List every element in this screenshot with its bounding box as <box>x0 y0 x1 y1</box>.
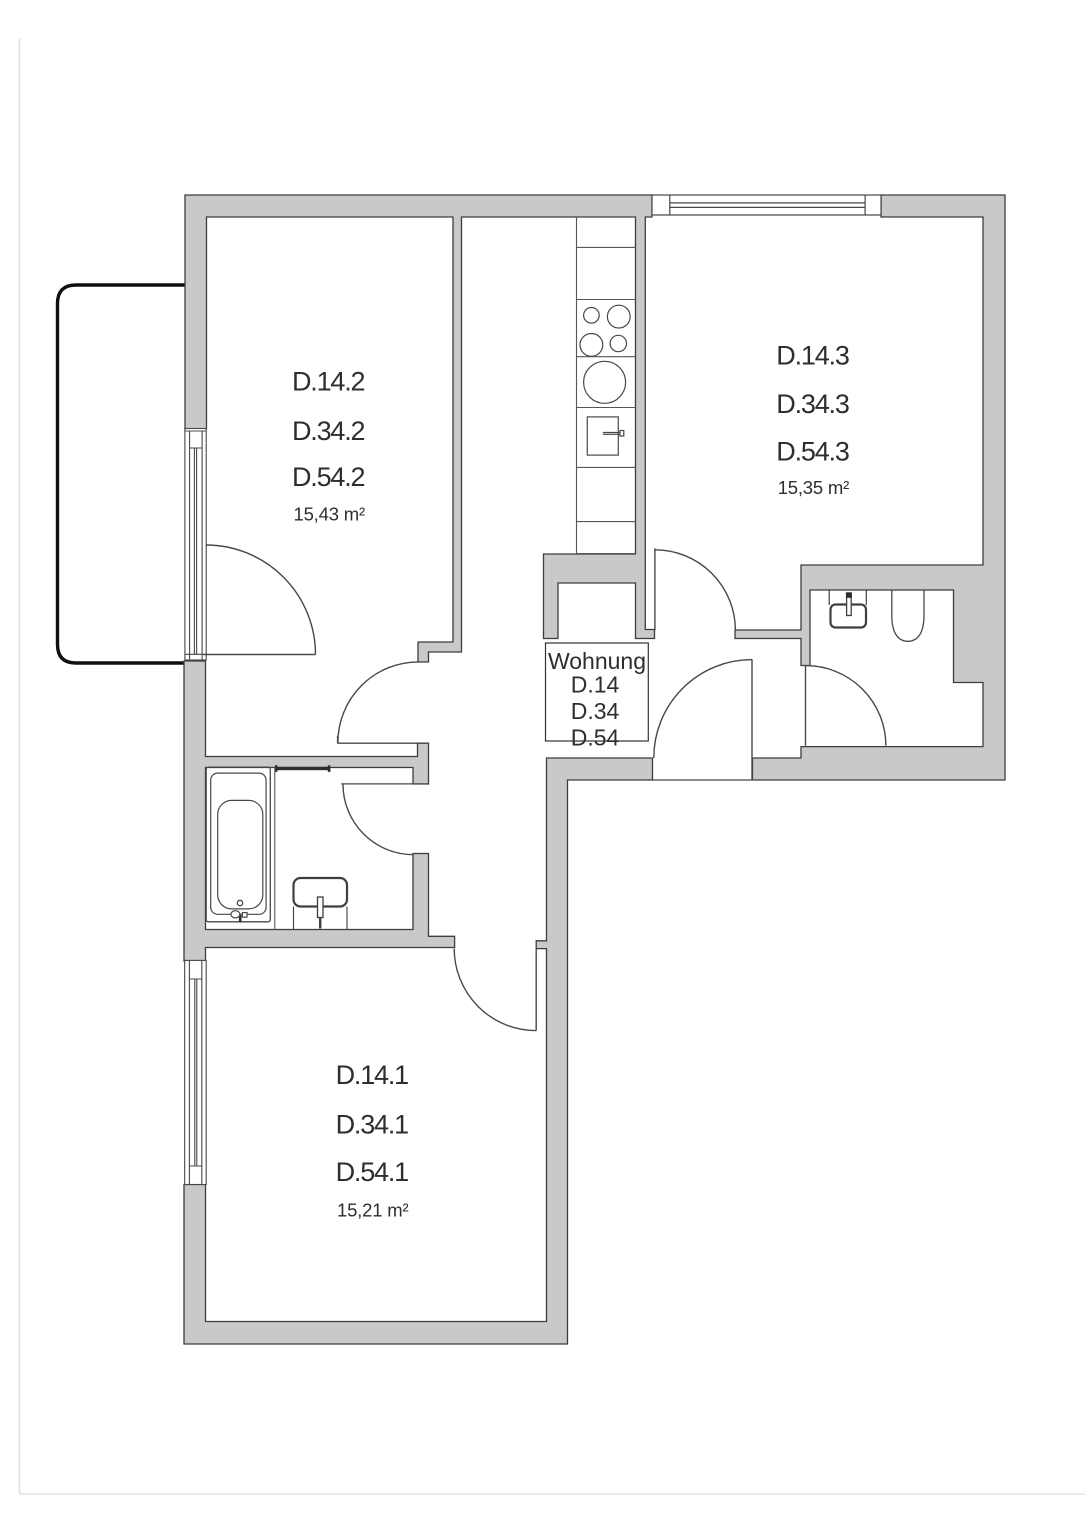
svg-text:D.54.3: D.54.3 <box>776 437 849 467</box>
svg-text:D.34: D.34 <box>571 698 620 724</box>
svg-text:D.54.2: D.54.2 <box>292 462 365 492</box>
svg-text:15,43 m²: 15,43 m² <box>294 503 365 524</box>
svg-text:D.54: D.54 <box>571 725 620 751</box>
svg-text:D.34.3: D.34.3 <box>776 389 849 419</box>
svg-text:D.54.1: D.54.1 <box>336 1157 409 1187</box>
svg-text:D.34.2: D.34.2 <box>292 416 365 446</box>
svg-text:15,21 m²: 15,21 m² <box>337 1200 408 1221</box>
svg-text:D.14.3: D.14.3 <box>776 341 849 371</box>
svg-text:Wohnung: Wohnung <box>548 648 646 674</box>
svg-text:15,35 m²: 15,35 m² <box>778 477 849 498</box>
svg-text:D.14.1: D.14.1 <box>336 1060 409 1090</box>
svg-text:D.14.2: D.14.2 <box>292 367 365 397</box>
svg-text:D.14: D.14 <box>571 672 620 698</box>
svg-text:D.34.1: D.34.1 <box>336 1109 409 1139</box>
